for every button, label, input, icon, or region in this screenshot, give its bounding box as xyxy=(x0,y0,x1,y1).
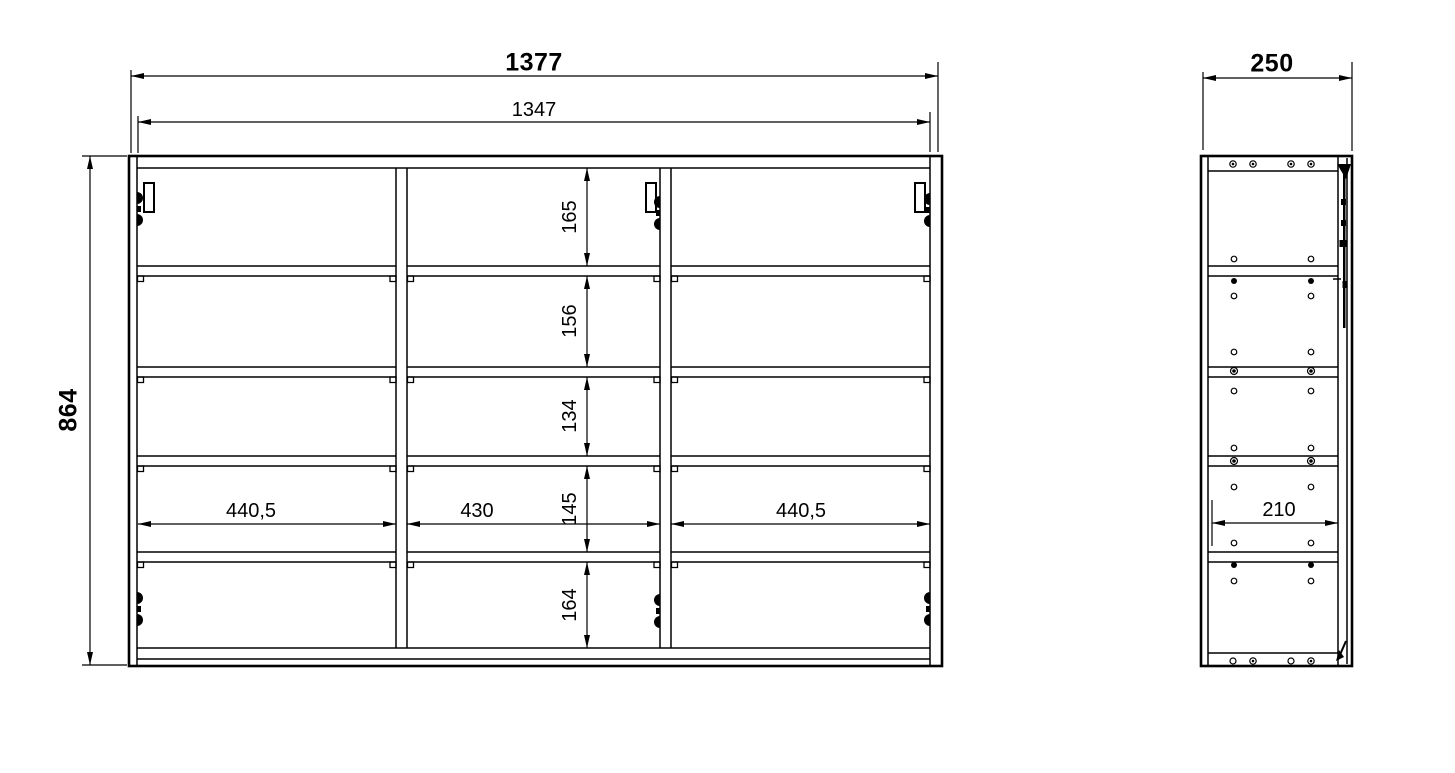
dim-label-inner-width: 1347 xyxy=(512,100,557,120)
side-dimension-lines xyxy=(1203,62,1352,546)
side-hinge-icon xyxy=(1337,164,1351,328)
side-carcass-outline xyxy=(1201,156,1352,666)
front-partitions xyxy=(396,168,671,648)
hinge-cup-icon xyxy=(924,592,930,626)
side-inner-lines xyxy=(1208,156,1347,666)
drawing-canvas: 1377 1347 864 165 156 134 145 164 440,5 … xyxy=(0,0,1455,773)
technical-drawing-svg xyxy=(0,0,1455,773)
hinge-cup-icon xyxy=(654,594,660,628)
dim-label-compartment-3: 440,5 xyxy=(776,501,826,521)
dim-label-height: 864 xyxy=(57,388,82,431)
dim-label-depth: 250 xyxy=(1250,52,1293,77)
dim-label-compartment-1: 440,5 xyxy=(226,501,276,521)
dim-label-opening-4: 145 xyxy=(560,492,580,525)
side-view xyxy=(1201,62,1352,666)
front-carcass-outline xyxy=(129,156,942,666)
front-dimension-lines xyxy=(82,62,938,665)
hinge-plate-icon xyxy=(915,183,925,212)
front-carcass-inner-lines xyxy=(137,156,930,666)
front-extension-lines xyxy=(82,62,938,665)
side-pin-holes xyxy=(1231,256,1315,584)
hinge-cup-icon xyxy=(137,592,143,626)
dim-label-opening-3: 134 xyxy=(560,399,580,432)
front-view xyxy=(82,62,942,666)
dim-label-inner-depth: 210 xyxy=(1262,500,1295,520)
hinge-plate-icon xyxy=(646,183,656,212)
hinge-plate-icons xyxy=(144,183,925,212)
dim-label-compartment-2: 430 xyxy=(460,501,493,521)
side-extension-lines xyxy=(1203,62,1352,546)
side-screw-holes xyxy=(1230,161,1314,664)
dim-label-opening-2: 156 xyxy=(560,304,580,337)
dim-label-opening-5: 164 xyxy=(560,588,580,621)
hinge-cup-icon xyxy=(137,192,143,226)
dim-label-outer-width: 1377 xyxy=(505,51,563,76)
hinge-plate-icon xyxy=(144,183,154,212)
dim-label-opening-1: 165 xyxy=(560,200,580,233)
